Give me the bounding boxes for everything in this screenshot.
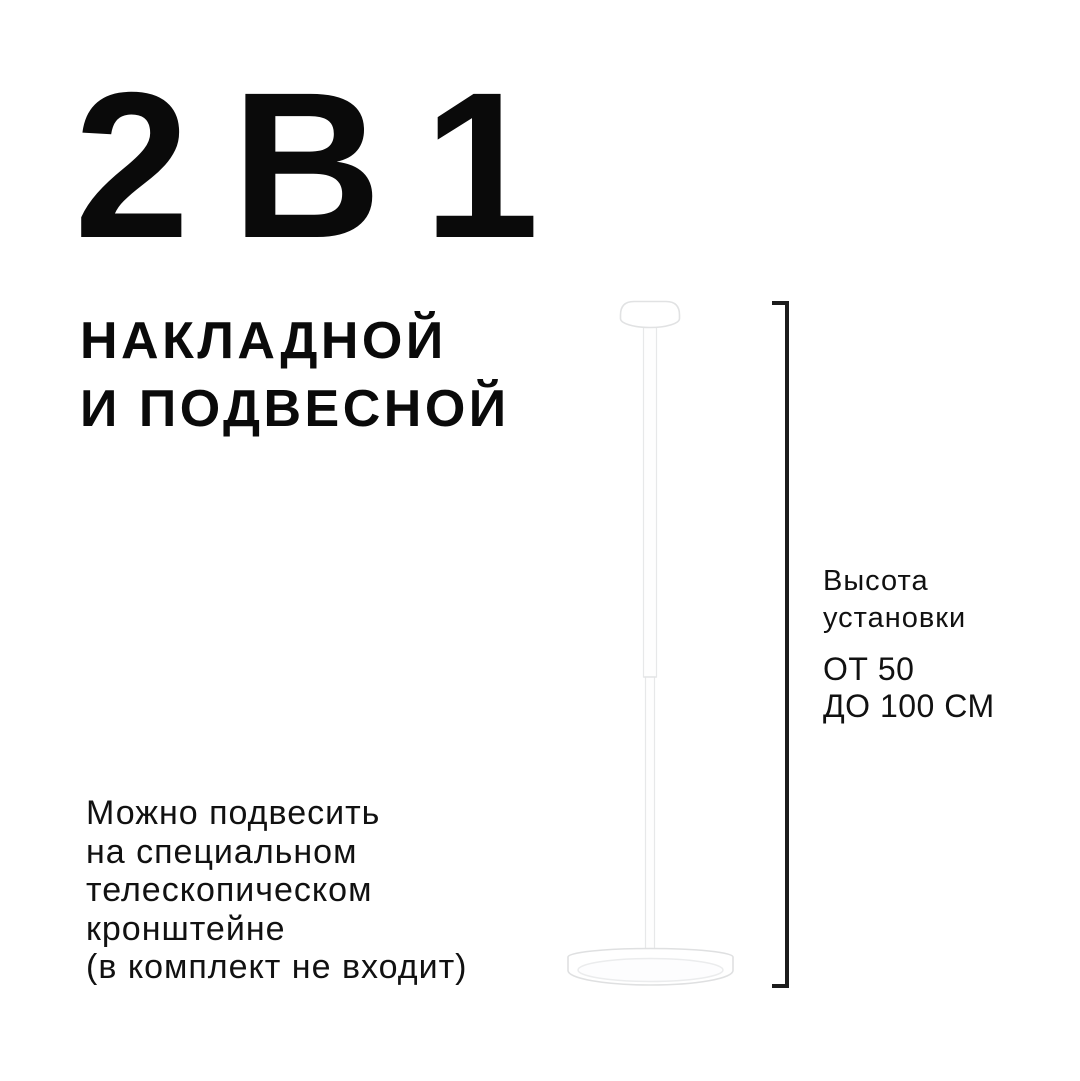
- pendant-lamp-illustration: [540, 290, 780, 1000]
- subtitle-line-2: И ПОДВЕСНОЙ: [80, 375, 510, 443]
- subtitle-line-1: НАКЛАДНОЙ: [80, 307, 510, 375]
- height-label: Высота установки: [823, 563, 966, 637]
- headline-subtitle: НАКЛАДНОЙ И ПОДВЕСНОЙ: [80, 307, 510, 443]
- height-dimension-bracket: [772, 301, 789, 988]
- height-value-line-1: ОТ 50: [823, 651, 995, 688]
- height-label-line-1: Высота: [823, 563, 966, 600]
- lamp-rod-lower: [646, 677, 655, 955]
- mounting-note-line-2: на специальном: [86, 833, 468, 872]
- mounting-note-line-4: кронштейне: [86, 910, 468, 949]
- height-value-line-2: ДО 100 СМ: [823, 688, 995, 725]
- product-infographic: 2 В 1 НАКЛАДНОЙ И ПОДВЕСНОЙ Высота устан…: [0, 0, 1080, 1081]
- lamp-canopy: [621, 302, 680, 328]
- mounting-note: Можно подвесить на специальном телескопи…: [86, 794, 468, 987]
- height-value: ОТ 50 ДО 100 СМ: [823, 651, 995, 725]
- lamp-diffuser: [578, 959, 723, 982]
- mounting-note-line-3: телескопическом: [86, 871, 468, 910]
- height-label-line-2: установки: [823, 600, 966, 637]
- lamp-rod-upper: [644, 318, 657, 677]
- mounting-note-line-5: (в комплект не входит): [86, 948, 468, 987]
- mounting-note-line-1: Можно подвесить: [86, 794, 468, 833]
- headline-2-in-1: 2 В 1: [74, 62, 531, 270]
